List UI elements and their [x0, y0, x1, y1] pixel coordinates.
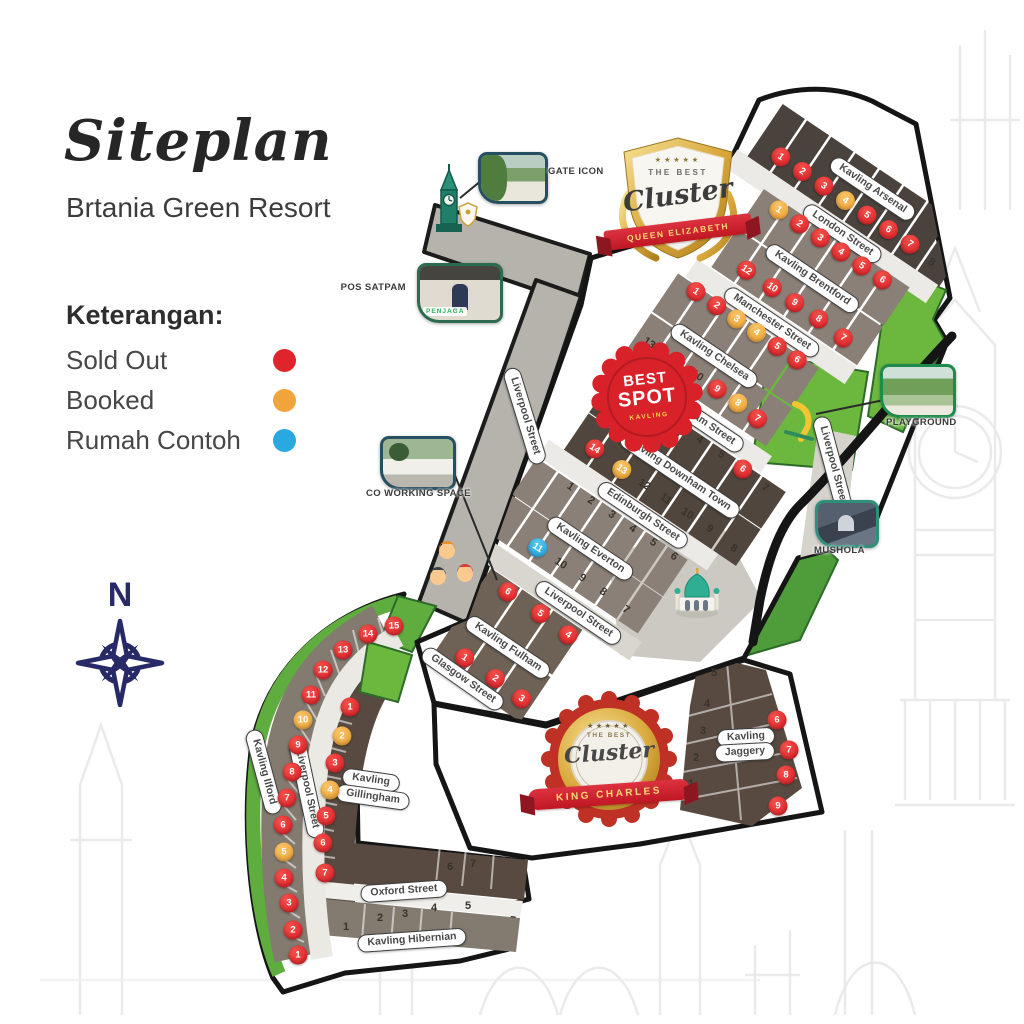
legend-item-label: Rumah Contoh [66, 425, 241, 456]
street-pill: Glasgow Street [418, 644, 507, 714]
plot-marker-gillingham-6: 6 [314, 834, 333, 853]
page-subtitle: Brtania Green Resort [66, 192, 331, 224]
plot-marker-ilford-5: 5 [275, 843, 294, 862]
plot-marker-jaggery-3: 3 [695, 723, 711, 739]
badge-stars: ★★★★★ [608, 156, 748, 164]
plot-marker-gillingham-3: 3 [326, 754, 345, 773]
legend-item-label: Booked [66, 385, 154, 416]
plot-marker-hibernian-6: 6 [442, 859, 458, 875]
plot-marker-ilford-12: 12 [314, 661, 333, 680]
plot-marker-ilford-8: 8 [283, 763, 302, 782]
legend-swatch-sold [273, 349, 296, 372]
plot-marker-jaggery-2: 2 [688, 750, 704, 766]
coworking-label: CO WORKING SPACE [366, 488, 471, 499]
plot-marker-jaggery-5: 5 [706, 665, 722, 681]
compass-north-label: N [72, 576, 168, 615]
plot-marker-gillingham-4: 4 [321, 781, 340, 800]
coworking-photo [380, 436, 456, 490]
plot-marker-ilford-1: 1 [289, 946, 308, 965]
plot-marker-jaggery-6: 6 [768, 711, 787, 730]
legend-items: Sold OutBookedRumah Contoh [66, 345, 296, 456]
legend-item-label: Sold Out [66, 345, 167, 376]
mushola-label: MUSHOLA [814, 545, 865, 556]
street-pill: Kavling Ilford [244, 728, 283, 817]
plot-marker-hibernian-7: 7 [465, 856, 481, 872]
compass-rose-icon [72, 615, 168, 711]
legend-swatch-booked [273, 389, 296, 412]
plot-marker-hibernian-4: 4 [426, 900, 442, 916]
mushola-photo [815, 500, 879, 548]
street-pill: Liverpool Street [502, 366, 548, 467]
plot-marker-hibernian-3: 3 [397, 906, 413, 922]
plot-marker-jaggery-4: 4 [699, 696, 715, 712]
best-cluster-king-charles-badge: ★★★★★ THE BEST Cluster KING CHARLES [534, 684, 684, 834]
street-pill: Jaggery [714, 742, 775, 763]
plot-marker-gillingham-1: 1 [341, 698, 360, 717]
legend-heading: Keterangan: [66, 300, 296, 331]
best-spot-badge: BEST SPOT KAVLING [585, 335, 708, 458]
page-title: Siteplan [64, 108, 333, 174]
plot-marker-jaggery-8: 8 [777, 766, 796, 785]
legend: Keterangan: Sold OutBookedRumah Contoh [66, 300, 296, 465]
playground-photo [880, 364, 956, 418]
plot-marker-ilford-15: 15 [385, 617, 404, 636]
plot-marker-ilford-4: 4 [275, 869, 294, 888]
plot-marker-gillingham-7: 7 [316, 864, 335, 883]
legend-item-booked: Booked [66, 385, 296, 416]
best-cluster-queen-elizabeth-badge: ★★★★★ THE BEST Cluster QUEEN ELIZABETH [608, 132, 748, 268]
pos-satpam-label: POS SATPAM [306, 282, 406, 293]
penjaga-sign: PENJAGA [423, 307, 467, 316]
plot-marker-jaggery-7: 7 [780, 741, 799, 760]
siteplan-poster: Siteplan Brtania Green Resort Keterangan… [0, 0, 1024, 1024]
plot-marker-jaggery-9: 9 [769, 797, 788, 816]
legend-item-contoh: Rumah Contoh [66, 425, 296, 456]
plot-marker-ilford-2: 2 [284, 921, 303, 940]
plot-marker-ilford-9: 9 [289, 736, 308, 755]
street-pill: Kavling Hibernian [357, 927, 467, 952]
gate-photo [478, 152, 548, 204]
badge-stars: ★★★★★ [534, 722, 684, 730]
plot-marker-ilford-7: 7 [278, 789, 297, 808]
plot-marker-ilford-13: 13 [334, 641, 353, 660]
plot-marker-ilford-6: 6 [274, 816, 293, 835]
plot-marker-hibernian-5: 5 [460, 898, 476, 914]
legend-item-sold: Sold Out [66, 345, 296, 376]
street-pill: Gillingham [335, 783, 411, 811]
plot-marker-ilford-14: 14 [359, 625, 378, 644]
pos-satpam-photo: PENJAGA [417, 263, 503, 323]
plot-marker-hibernian-1: 1 [338, 919, 354, 935]
compass: N [72, 576, 168, 712]
gate-label: GATE ICON [548, 166, 604, 177]
plot-marker-ilford-11: 11 [302, 686, 321, 705]
plot-marker-hibernian-2: 2 [372, 910, 388, 926]
plot-marker-ilford-3: 3 [280, 894, 299, 913]
plot-marker-gillingham-5: 5 [317, 807, 336, 826]
plot-marker-ilford-10: 10 [294, 711, 313, 730]
playground-label: PLAYGROUND [886, 417, 957, 428]
legend-swatch-contoh [273, 429, 296, 452]
plot-marker-gillingham-2: 2 [333, 727, 352, 746]
